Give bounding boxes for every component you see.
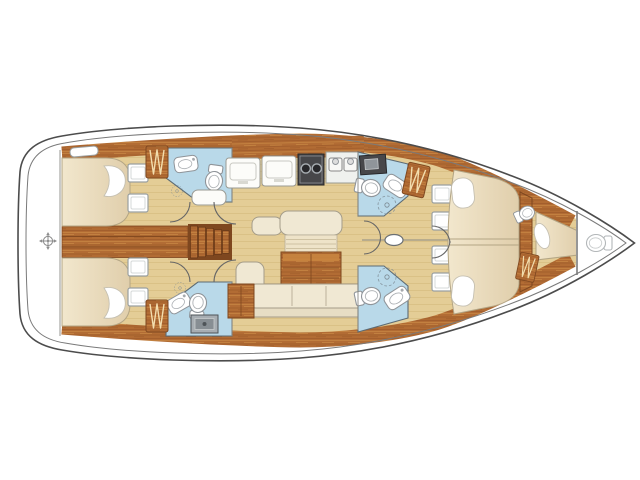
hanging-locker-icon <box>146 146 168 178</box>
hanging-locker-icon <box>146 300 168 332</box>
chart-seat <box>192 190 226 205</box>
bed-pillow <box>450 177 475 209</box>
toilet-icon <box>587 235 613 252</box>
mast-icon <box>385 235 403 246</box>
sofa-end-cabinet <box>228 284 254 318</box>
bed-pillow <box>450 275 475 307</box>
deck-hatch <box>70 146 99 157</box>
salon-seat <box>252 217 282 235</box>
engine-compartment <box>62 226 188 258</box>
locker-hatch-square <box>128 164 148 182</box>
double-sink-icon <box>326 152 360 183</box>
vanity-counter <box>359 154 386 175</box>
fridge-counter <box>226 158 260 188</box>
worktop-counter <box>262 156 296 186</box>
salon-table-top <box>280 211 342 235</box>
table-folding-leaf <box>285 235 337 252</box>
locker-hatch-square <box>128 258 148 276</box>
locker-hatch-square <box>432 185 452 203</box>
shower-tray-icon <box>191 315 218 333</box>
stove-icon <box>298 154 324 185</box>
companionway-steps <box>188 224 232 260</box>
yacht-floor-plan <box>0 0 640 480</box>
locker-hatch-square <box>128 288 148 306</box>
locker-hatch-square <box>128 194 148 212</box>
sink-icon <box>173 155 198 173</box>
